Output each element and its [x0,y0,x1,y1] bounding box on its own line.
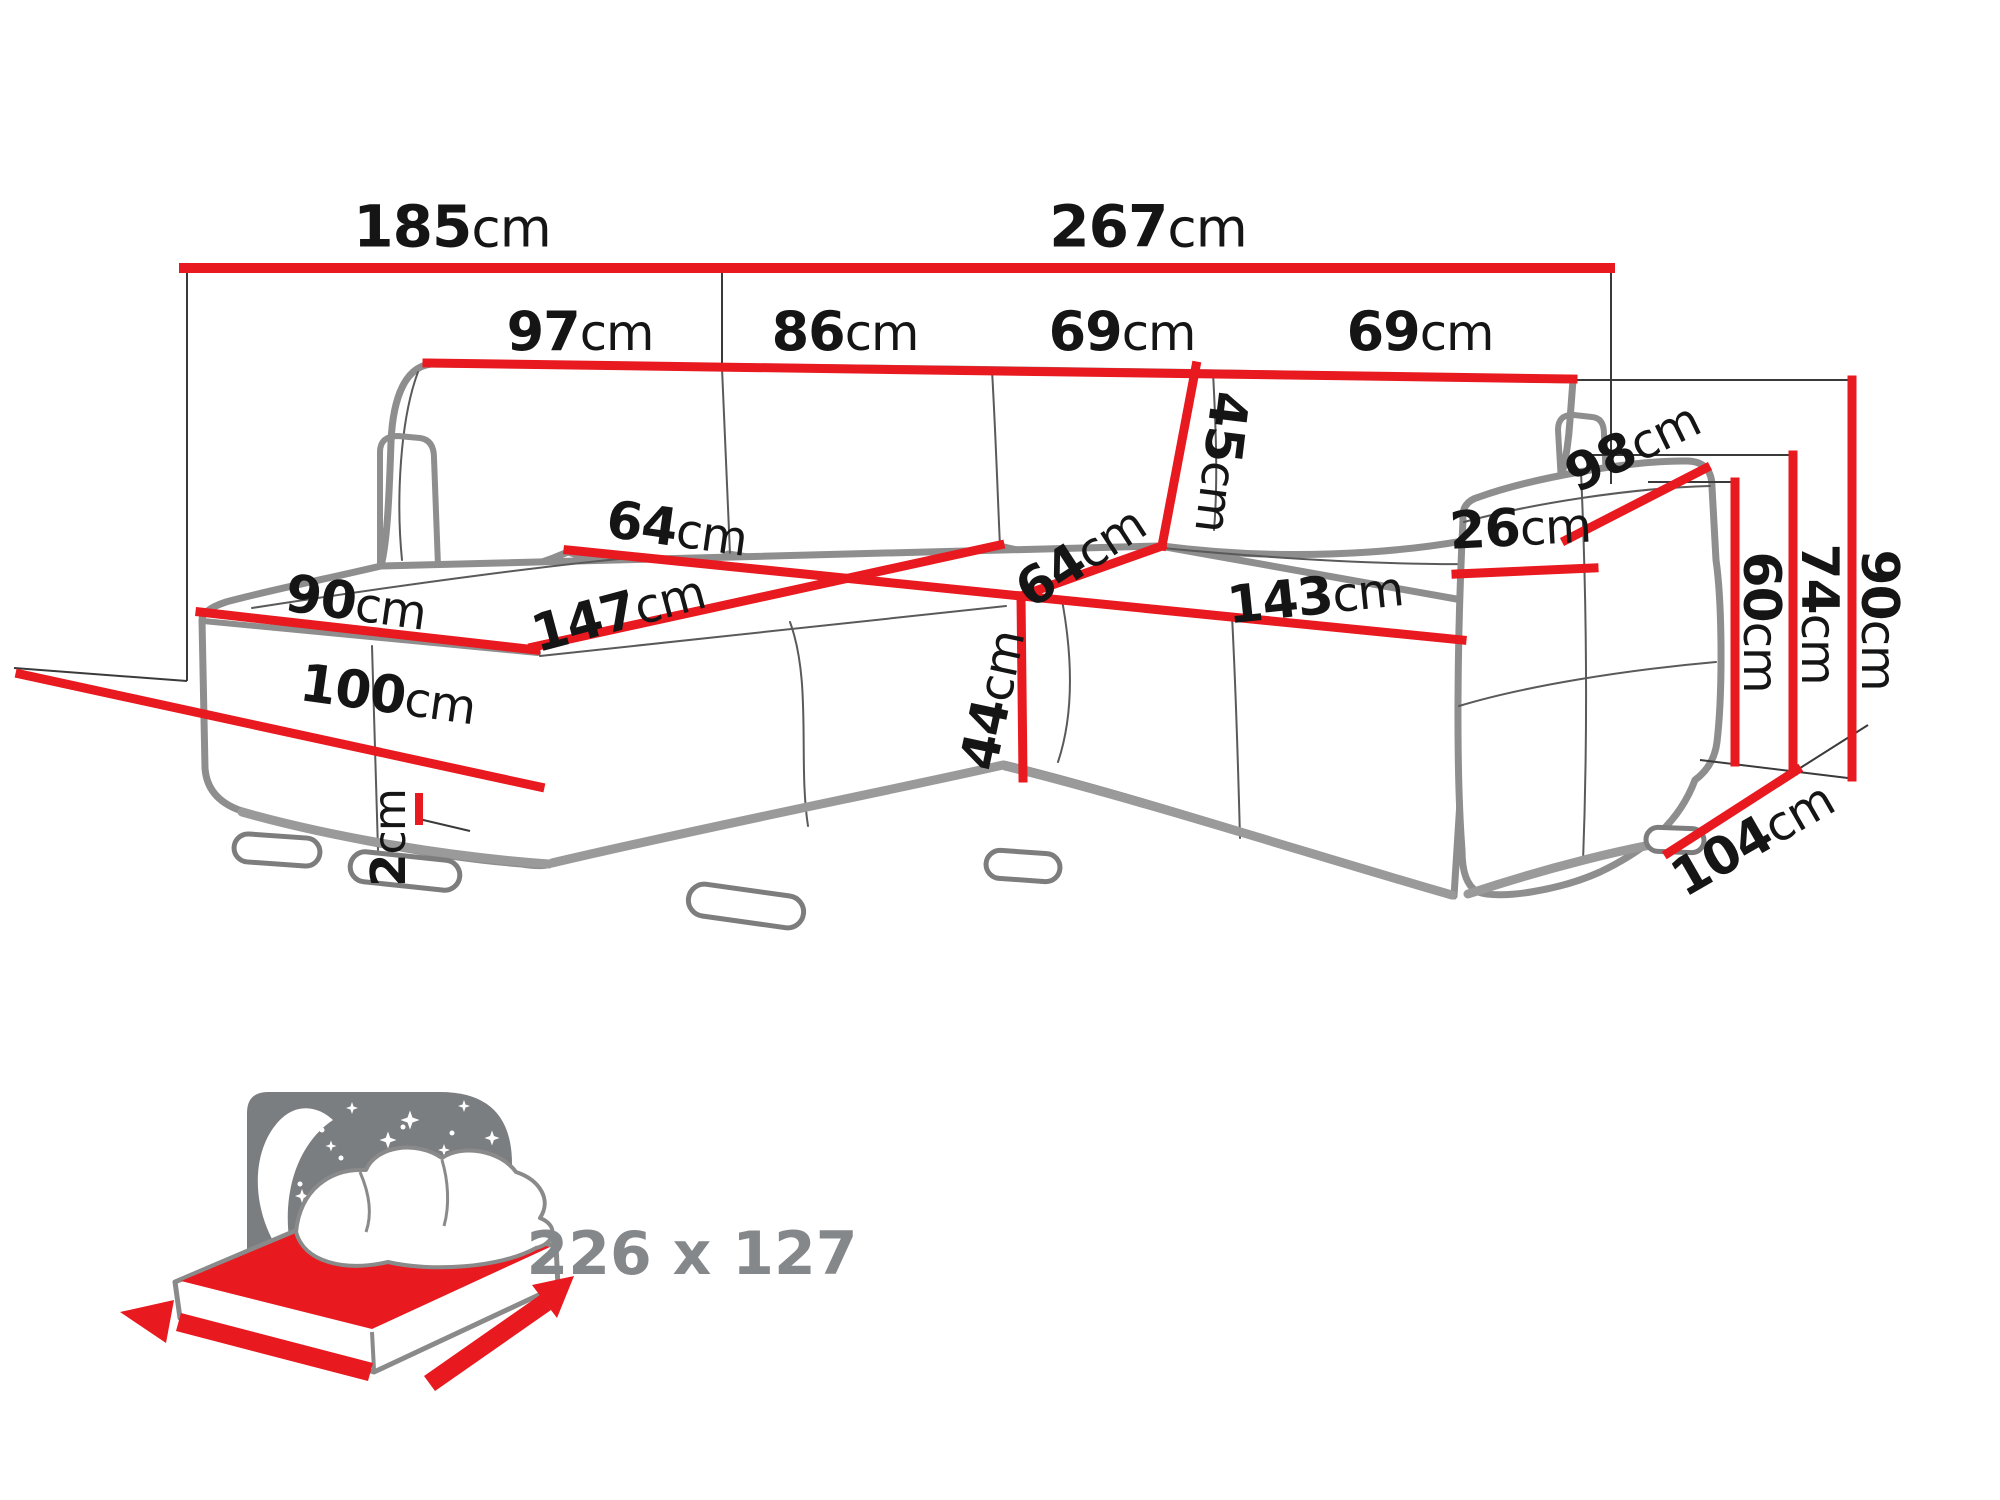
dim-label-back-cushion-2: 86cm [772,300,919,363]
dim-label-armrest-width: 26cm [1448,495,1592,562]
dim-label-back-cushion-1: 97cm [507,300,654,363]
extension-line [1797,725,1868,770]
arrow-head-left [120,1300,174,1343]
dim-label-side-back-height: 74cm [1789,543,1849,684]
dim-label-width-left-section: 185cm [353,192,550,260]
dim-label-back-cushion-4: 69cm [1347,300,1494,363]
sofa-dimension-diagram: 185cm 267cm 97cm 86cm 69cm 69cm 45cm 64c… [0,0,2000,1500]
sofa-leg [233,833,321,867]
dim-label-back-cushion-3: 69cm [1049,300,1196,363]
sofa-leg [985,849,1061,882]
dim-line-armrest-width [1456,568,1594,574]
sofa-drawing [202,364,1721,930]
sofa-leg [686,882,805,930]
sleeper-function-icon: 226 x 127 [120,1092,857,1391]
extension-line [1700,760,1856,779]
dim-label-leg-height: 2cm [361,789,417,887]
dim-label-armrest-height: 60cm [1731,551,1791,692]
dim-label-width-main-section: 267cm [1049,192,1246,260]
dim-label-total-height: 90cm [1849,549,1909,690]
dimension-diagram-page: 185cm 267cm 97cm 86cm 69cm 69cm 45cm 64c… [0,0,2000,1500]
sleeping-area-label: 226 x 127 [527,1219,858,1289]
